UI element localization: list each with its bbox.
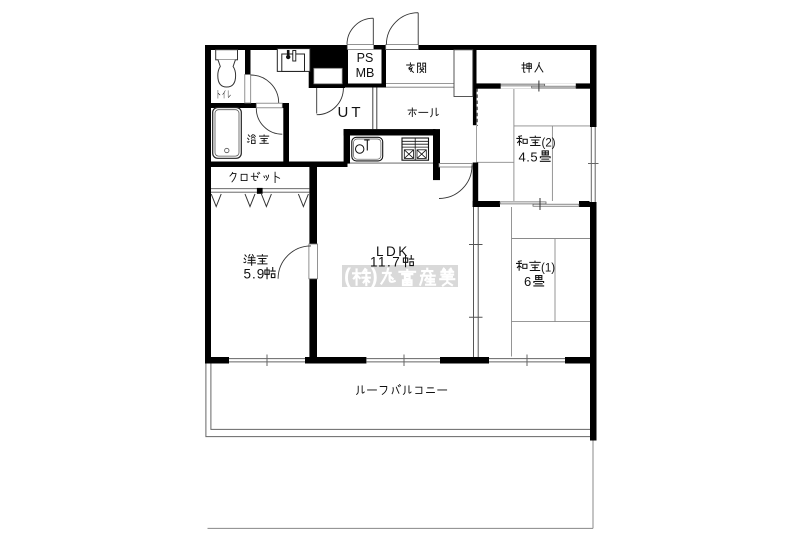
- svg-text:(1): (1): [541, 263, 555, 275]
- svg-text:5.9: 5.9: [244, 267, 266, 282]
- svg-text:(: (: [344, 265, 351, 288]
- svg-text:4.5: 4.5: [519, 150, 539, 165]
- svg-text:): ): [371, 265, 378, 288]
- svg-text:(2): (2): [542, 138, 556, 150]
- svg-text:PS: PS: [357, 51, 374, 65]
- svg-text:UT: UT: [338, 104, 364, 121]
- svg-text:MB: MB: [356, 66, 375, 80]
- svg-text:6: 6: [524, 274, 531, 289]
